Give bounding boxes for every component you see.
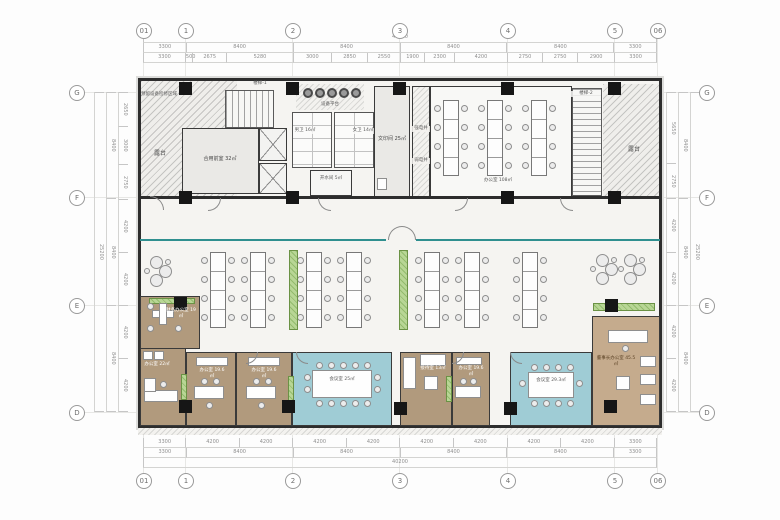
column — [608, 191, 621, 204]
dim-value: 4200 — [666, 252, 676, 305]
cabinet — [399, 250, 408, 330]
chair — [567, 400, 574, 407]
dim-value: 4200 — [346, 438, 400, 448]
column — [501, 82, 514, 95]
grid-bubble-top-2: 2 — [285, 23, 301, 39]
chair — [543, 364, 550, 371]
chair — [460, 378, 467, 385]
column — [282, 400, 295, 413]
glass-partition-left — [140, 239, 386, 241]
dim-value: 3000 — [118, 126, 128, 164]
chair — [297, 295, 304, 302]
dim-value: 5650 — [666, 92, 676, 163]
chair — [297, 314, 304, 321]
dim-value: 8400 — [678, 92, 688, 198]
chair — [513, 314, 520, 321]
grid-bubble-bottom-2: 2 — [285, 473, 301, 489]
chair — [228, 295, 235, 302]
dim-value: 2750 — [666, 163, 676, 198]
chair — [324, 314, 331, 321]
conference-table-25 — [312, 370, 372, 398]
column — [393, 82, 406, 95]
column — [179, 400, 192, 413]
dim-value: 4200 — [453, 438, 507, 448]
chair — [434, 143, 441, 150]
office-196a-label: 办公室 19.6㎡ — [198, 368, 226, 379]
chair — [442, 276, 449, 283]
cabinet — [181, 374, 187, 400]
chair — [340, 400, 347, 407]
dim-value: 1900 — [400, 53, 425, 63]
chair — [455, 257, 462, 264]
chair — [461, 143, 468, 150]
conference-table-293 — [528, 372, 574, 398]
furniture — [196, 357, 228, 366]
chair — [434, 105, 441, 112]
dim-value: 8400 — [293, 43, 400, 53]
floor-plan-canvas: 01 1 2 3 4 5 06 01 1 2 3 4 5 06 G F E D … — [0, 0, 780, 520]
chair — [324, 257, 331, 264]
dim-value: 4200 — [239, 438, 293, 448]
dim-value: 500 — [185, 53, 192, 63]
dim-value: 4200 — [118, 305, 128, 358]
grid-bubble-right-D: D — [699, 405, 715, 421]
furniture — [154, 351, 164, 360]
chair — [165, 259, 171, 265]
dim-value: 3300 — [143, 43, 186, 53]
office-22-label: 办公室 22㎡ — [142, 362, 172, 368]
cabinet — [289, 250, 298, 330]
dim-value: 8400 — [506, 43, 613, 53]
grid-bubble-bottom-06: 06 — [650, 473, 666, 489]
desk-bank — [522, 252, 538, 328]
dim-value: 2750 — [118, 164, 128, 199]
grid-bubble-left-F: F — [69, 190, 85, 206]
chair — [268, 257, 275, 264]
office-196b-label: 办公室 19.6㎡ — [250, 368, 278, 379]
dim-bottom-row1: 3300420042004200420042004200420042003300 — [143, 438, 657, 448]
chair — [434, 162, 441, 169]
dim-left-sub: 2650300027504200420042004200 — [118, 92, 128, 412]
desk-bank — [250, 252, 266, 328]
chair — [206, 402, 213, 409]
chair — [543, 400, 550, 407]
round-table — [624, 272, 637, 285]
elevator-1 — [259, 128, 287, 161]
dim-value: 4200 — [454, 53, 507, 63]
chair — [478, 124, 485, 131]
cabinet — [149, 298, 195, 304]
chair — [337, 276, 344, 283]
column — [179, 82, 192, 95]
dim-value: 4200 — [507, 438, 561, 448]
round-table — [596, 272, 609, 285]
grid-bubble-left-D: D — [69, 405, 85, 421]
chair — [455, 295, 462, 302]
womens-toilet-label: 女卫 14㎡ — [352, 128, 374, 134]
chair — [328, 362, 335, 369]
dim-right-coarse: 840084008400 — [678, 92, 688, 412]
chair — [201, 257, 208, 264]
dim-bottom-row2: 330084008400840084003300 — [143, 448, 657, 458]
chair — [352, 400, 359, 407]
water-room-label: 开水间 5㎡ — [312, 176, 350, 182]
elevator-2 — [259, 163, 287, 194]
dim-value: 25200 — [690, 92, 700, 412]
chair — [513, 276, 520, 283]
chair — [228, 314, 235, 321]
chair — [505, 143, 512, 150]
chair — [316, 400, 323, 407]
dim-value: 40200 — [143, 458, 657, 468]
chair — [340, 362, 347, 369]
weak-power-shaft-label: 弱电井 — [412, 158, 430, 164]
chair — [324, 295, 331, 302]
equip-zone-label: 预留设备检修区域 — [141, 92, 177, 98]
column — [394, 402, 407, 415]
grid-bubble-top-4: 4 — [500, 23, 516, 39]
chair — [470, 378, 477, 385]
grid-bubble-top-5: 5 — [607, 23, 623, 39]
desk-bank — [443, 100, 459, 176]
dim-value: 3300 — [613, 448, 657, 458]
meeting-25-label: 会议室 25㎡ — [314, 377, 370, 383]
dim-value: 3300 — [613, 43, 657, 53]
chair — [576, 380, 583, 387]
furniture — [455, 386, 481, 398]
reception-label: 接待室 13㎡ — [418, 366, 448, 372]
chair — [455, 314, 462, 321]
desk-bank — [424, 252, 440, 328]
dim-value: 4200 — [292, 438, 346, 448]
chair — [461, 124, 468, 131]
column — [604, 400, 617, 413]
dim-value: 4200 — [560, 438, 614, 448]
chair — [304, 374, 311, 381]
chair — [505, 124, 512, 131]
chair — [522, 105, 529, 112]
cabinet — [593, 303, 655, 311]
chair — [147, 303, 154, 310]
chair — [461, 105, 468, 112]
dim-value: 3300 — [614, 53, 657, 63]
furniture — [377, 178, 387, 190]
chair — [478, 162, 485, 169]
shaft-strip — [412, 86, 430, 198]
chair — [241, 295, 248, 302]
grid-bubble-top-1: 1 — [178, 23, 194, 39]
dim-left-coarse: 840084008400 — [106, 92, 116, 412]
chair — [513, 257, 520, 264]
grid-bubble-left-G: G — [69, 85, 85, 101]
chairman-office-label: 董事长办公室 45.5㎡ — [596, 356, 636, 367]
chair — [337, 314, 344, 321]
chair — [505, 105, 512, 112]
dim-value: 4200 — [185, 438, 239, 448]
chair — [519, 380, 526, 387]
dim-value: 2650 — [118, 92, 128, 126]
chair — [374, 374, 381, 381]
chair — [364, 276, 371, 283]
chair — [482, 295, 489, 302]
chair — [590, 266, 596, 272]
chair — [268, 314, 275, 321]
office-top-label: 办公室 108㎡ — [467, 178, 529, 184]
chair — [316, 362, 323, 369]
chair — [540, 314, 547, 321]
chair — [297, 257, 304, 264]
chair — [324, 276, 331, 283]
furniture — [246, 386, 276, 399]
chair — [201, 295, 208, 302]
chair — [415, 276, 422, 283]
chair — [482, 257, 489, 264]
dim-value: 8400 — [506, 448, 613, 458]
chair — [201, 276, 208, 283]
chair — [364, 314, 371, 321]
chair — [374, 386, 381, 393]
grid-bubble-top-01: 01 — [136, 23, 152, 39]
dim-value: 3000 — [293, 53, 331, 63]
exterior-wall-band — [138, 428, 662, 435]
chair — [364, 295, 371, 302]
equipment-fan — [327, 88, 337, 98]
chair — [513, 295, 520, 302]
dim-value: 2300 — [424, 53, 454, 63]
finance-office-label: 财务办公室 19㎡ — [166, 308, 196, 319]
chair — [147, 325, 154, 332]
chair — [622, 345, 629, 352]
chair — [364, 362, 371, 369]
grid-bubble-bottom-01: 01 — [136, 473, 152, 489]
furniture — [640, 356, 656, 367]
mens-toilet — [292, 112, 332, 168]
office-196c-label: 办公室 19.6㎡ — [457, 366, 485, 377]
dim-top-row2: 3300500267552803000285025501900230042002… — [143, 53, 657, 63]
chair — [482, 276, 489, 283]
desk-bank — [346, 252, 362, 328]
terrace-right-label: 露台 — [624, 146, 644, 154]
dim-value: 3300 — [143, 53, 185, 63]
equipment-platform-label: 设备平台 — [304, 102, 356, 108]
dim-left-total: 25200 — [94, 92, 104, 412]
chair — [415, 295, 422, 302]
meeting-293-label: 会议室 29.3㎡ — [528, 378, 574, 384]
dim-value: 5280 — [226, 53, 292, 63]
grid-bubble-left-E: E — [69, 298, 85, 314]
chair — [461, 162, 468, 169]
column — [179, 191, 192, 204]
chair — [297, 276, 304, 283]
grid-bubble-right-G: G — [699, 85, 715, 101]
chair — [611, 257, 617, 263]
chair — [482, 314, 489, 321]
chair — [549, 124, 556, 131]
chair — [175, 325, 182, 332]
chair — [415, 314, 422, 321]
dim-value: 8400 — [293, 448, 400, 458]
chair — [337, 295, 344, 302]
grid-bubble-bottom-1: 1 — [178, 473, 194, 489]
chair — [337, 257, 344, 264]
dim-value: 8400 — [106, 305, 116, 412]
chair — [268, 276, 275, 283]
furniture — [403, 357, 416, 389]
stair-1-label: 楼梯-1 — [246, 81, 274, 87]
dim-value: 8400 — [400, 448, 507, 458]
glass-partition-right — [416, 239, 660, 241]
grid-bubble-right-F: F — [699, 190, 715, 206]
furniture — [616, 376, 630, 390]
chair — [258, 402, 265, 409]
chair — [505, 162, 512, 169]
chair — [555, 364, 562, 371]
dim-value: 4200 — [666, 358, 676, 412]
furniture — [640, 374, 656, 385]
furniture — [608, 330, 648, 343]
cabinet — [446, 376, 452, 402]
chair — [328, 400, 335, 407]
chair — [144, 268, 150, 274]
chair — [352, 362, 359, 369]
equipment-fan — [303, 88, 313, 98]
chair — [639, 257, 645, 263]
grid-bubble-bottom-3: 3 — [392, 473, 408, 489]
dim-value: 8400 — [678, 198, 688, 304]
chair — [455, 276, 462, 283]
dim-value: 4200 — [118, 252, 128, 305]
chair — [160, 381, 167, 388]
desk-bank — [464, 252, 480, 328]
print-room-label: 文印间 25㎡ — [377, 136, 407, 142]
grid-bubble-bottom-5: 5 — [607, 473, 623, 489]
chair — [618, 266, 624, 272]
chair — [549, 105, 556, 112]
womens-toilet — [334, 112, 374, 168]
chair — [540, 257, 547, 264]
chair — [442, 314, 449, 321]
dim-value: 3300 — [143, 448, 186, 458]
dim-value: 4200 — [666, 305, 676, 358]
dim-right-total: 25200 — [690, 92, 700, 412]
chair — [241, 257, 248, 264]
equipment-fan — [351, 88, 361, 98]
dim-value: 8400 — [106, 92, 116, 198]
column — [605, 299, 618, 312]
furniture — [424, 376, 438, 390]
furniture — [194, 386, 224, 399]
chair — [478, 143, 485, 150]
chair — [522, 124, 529, 131]
dim-value: 8400 — [106, 198, 116, 304]
dim-value: 2850 — [331, 53, 367, 63]
column — [286, 82, 299, 95]
chair — [478, 105, 485, 112]
desk-bank — [306, 252, 322, 328]
column — [504, 402, 517, 415]
furniture — [640, 394, 656, 405]
stair-2-label: 楼梯-2 — [571, 91, 601, 97]
dim-value: 3300 — [143, 438, 185, 448]
desk-bank — [531, 100, 547, 176]
dim-value: 4200 — [118, 358, 128, 412]
stair-1 — [225, 90, 274, 128]
grid-bubble-right-E: E — [699, 298, 715, 314]
equipment-fan — [339, 88, 349, 98]
dim-value: 3300 — [614, 438, 657, 448]
chair — [241, 276, 248, 283]
grid-bubble-top-06: 06 — [650, 23, 666, 39]
terrace-right — [603, 84, 659, 196]
dim-top-row1: 330084008400840084003300 — [143, 43, 657, 53]
chair — [201, 314, 208, 321]
cabinet — [288, 376, 294, 402]
dim-value: 2550 — [367, 53, 400, 63]
dim-value: 8400 — [186, 448, 293, 458]
dim-value: 8400 — [400, 43, 507, 53]
dim-value: 2750 — [542, 53, 577, 63]
column — [608, 82, 621, 95]
dim-right-sub: 565027504200420042004200 — [666, 92, 676, 412]
chair — [442, 295, 449, 302]
chair — [522, 162, 529, 169]
chair — [540, 295, 547, 302]
chair — [434, 124, 441, 131]
dim-value: 4200 — [666, 198, 676, 251]
chair — [304, 386, 311, 393]
chair — [442, 257, 449, 264]
grid-bubble-bottom-4: 4 — [500, 473, 516, 489]
dim-value: 25200 — [94, 92, 104, 412]
column — [501, 191, 514, 204]
desk-bank — [487, 100, 503, 176]
chair — [522, 143, 529, 150]
furniture — [420, 354, 446, 366]
chair — [268, 295, 275, 302]
dim-value: 4200 — [399, 438, 453, 448]
chair — [228, 276, 235, 283]
chair — [540, 276, 547, 283]
furniture — [144, 378, 156, 392]
chair — [364, 400, 371, 407]
dim-value: 2750 — [507, 53, 542, 63]
dim-value: 8400 — [678, 305, 688, 412]
chair — [549, 162, 556, 169]
vestibule-label: 合用前室 32㎡ — [188, 156, 252, 162]
grid-bubble-top-3: 3 — [392, 23, 408, 39]
dim-value: 4200 — [118, 199, 128, 252]
dim-value: 2675 — [192, 53, 226, 63]
dim-value: 8400 — [186, 43, 293, 53]
dim-value: 2900 — [577, 53, 614, 63]
chair — [549, 143, 556, 150]
chair — [531, 400, 538, 407]
chair — [241, 314, 248, 321]
mens-toilet-label: 男卫 16㎡ — [294, 128, 316, 134]
desk-bank — [210, 252, 226, 328]
chair — [567, 364, 574, 371]
chair — [228, 257, 235, 264]
stair-2 — [572, 88, 602, 196]
furniture — [143, 351, 153, 360]
chair — [555, 400, 562, 407]
strong-power-shaft-label: 强电井 — [412, 126, 430, 132]
equipment-fan — [315, 88, 325, 98]
chair — [531, 364, 538, 371]
round-table — [150, 274, 163, 287]
water-room — [310, 170, 352, 196]
column — [286, 191, 299, 204]
